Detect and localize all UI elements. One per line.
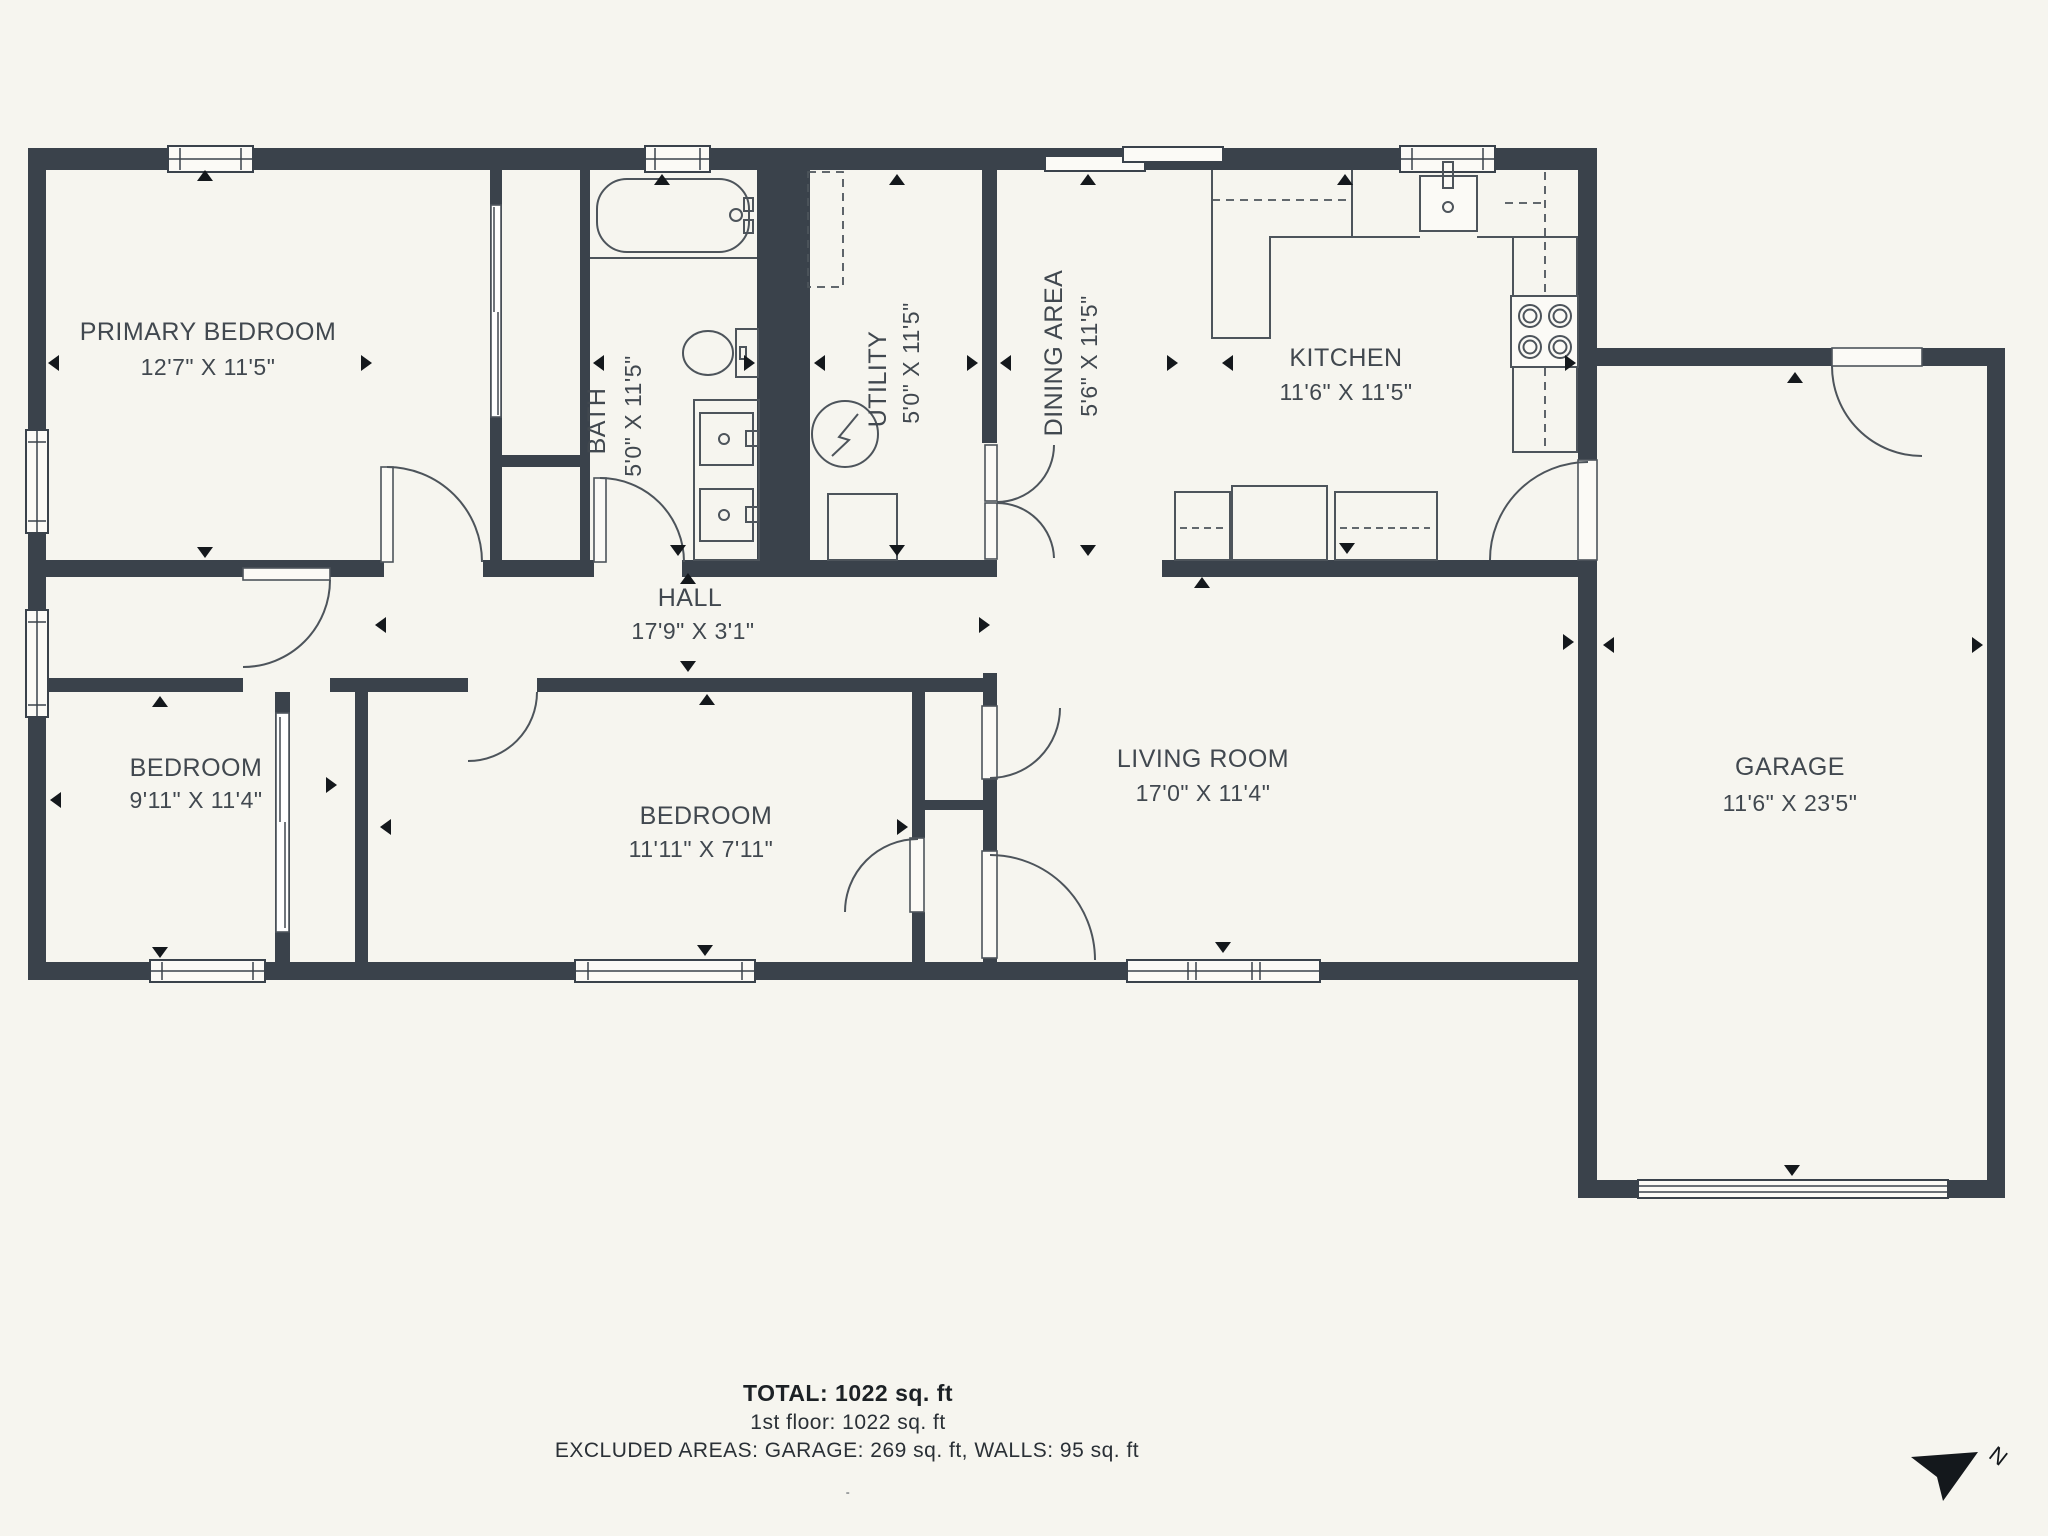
dim-arrow-down <box>1215 942 1231 953</box>
summary: TOTAL: 1022 sq. ft 1st floor: 1022 sq. f… <box>555 1380 1139 1499</box>
dim-arrow-down <box>1339 543 1355 554</box>
dim-arrow-down <box>680 661 696 672</box>
door-kitchen-garage <box>1490 460 1597 560</box>
door-primary-bedroom <box>381 467 482 562</box>
dim-arrow-up <box>152 696 168 707</box>
dim-arrow-up <box>699 694 715 705</box>
summary-total: TOTAL: 1022 sq. ft <box>743 1380 953 1406</box>
dim-arrow-down <box>889 545 905 556</box>
room-dims-garage: 11'6" X 23'5" <box>1723 790 1858 816</box>
window-bedroom1-left <box>26 610 48 717</box>
dim-arrow-up <box>889 174 905 185</box>
dim-arrow-down <box>1784 1165 1800 1176</box>
room-label-kitchen: KITCHEN <box>1289 344 1402 372</box>
room-dims-hall: 17'9" X 3'1" <box>631 618 754 644</box>
dim-arrow-left <box>50 792 61 808</box>
north-label: N <box>1984 1441 2012 1471</box>
room-label-utility: UTILITY <box>864 331 892 428</box>
dim-arrow-left <box>814 355 825 371</box>
room-dims-utility: 5'0" X 11'5" <box>898 302 924 423</box>
dim-arrow-left <box>48 355 59 371</box>
dim-arrow-up <box>1194 577 1210 588</box>
wall-garage-top <box>1597 348 2005 366</box>
window-primary-left <box>26 430 48 533</box>
wall-garage-right <box>1987 348 2005 1198</box>
dim-arrow-up <box>1787 372 1803 383</box>
wall-bedroom2-left <box>355 692 368 962</box>
floorplan-page: PRIMARY BEDROOM 12'7" X 11'5" BATH 5'0" … <box>0 0 2048 1536</box>
room-label-hall: HALL <box>658 584 723 612</box>
walls <box>28 148 2005 1198</box>
dim-arrow-down <box>697 945 713 956</box>
summary-footnote-mark: - <box>846 1485 851 1499</box>
wall-primary-closet-bottom <box>490 455 590 467</box>
sliding-door-primary-closet <box>491 205 501 417</box>
sliding-door-bedroom1-closet <box>276 713 289 932</box>
dim-arrow-right <box>326 777 337 793</box>
wall-closet-divider <box>922 800 993 810</box>
dim-arrow-down <box>197 547 213 558</box>
stove-icon <box>1511 296 1578 367</box>
dim-arrow-up <box>1080 174 1096 185</box>
room-label-bath: BATH <box>583 388 611 455</box>
wall-top <box>28 148 1597 170</box>
dim-arrow-right <box>1972 637 1983 653</box>
window-kitchen-top <box>1400 146 1495 172</box>
wall-bath-utility <box>757 170 810 560</box>
bathroom-vanity-icon <box>694 400 759 560</box>
dim-arrow-right <box>744 355 755 371</box>
dim-arrow-left <box>593 355 604 371</box>
dim-arrow-right <box>361 355 372 371</box>
door-closet-lower <box>982 851 1095 960</box>
room-dims-dining-area: 5'6" X 11'5" <box>1076 295 1102 416</box>
window-bedroom1-bottom <box>150 960 265 982</box>
window-bedroom2-bottom <box>575 960 755 982</box>
room-label-dining-area: DINING AREA <box>1040 270 1068 437</box>
water-heater-dashed-icon <box>808 172 843 287</box>
room-label-living-room: LIVING ROOM <box>1117 745 1289 773</box>
door-dining-double <box>985 445 1054 559</box>
dim-arrow-right <box>1167 355 1178 371</box>
summary-excluded-areas: EXCLUDED AREAS: GARAGE: 269 sq. ft, WALL… <box>555 1439 1139 1462</box>
window-bath-top <box>645 146 710 172</box>
room-label-bedroom2: BEDROOM <box>640 802 773 830</box>
dimension-arrows <box>48 170 1983 1176</box>
summary-first-floor: 1st floor: 1022 sq. ft <box>750 1411 945 1434</box>
room-label-bedroom1: BEDROOM <box>130 754 263 782</box>
room-dims-bedroom1: 9'11" X 11'4" <box>129 787 262 813</box>
dim-arrow-right <box>1563 634 1574 650</box>
compass: N <box>1911 1441 2013 1501</box>
window-primary-top <box>168 146 253 172</box>
dim-arrow-down <box>1080 545 1096 556</box>
wall-closet-bath <box>580 170 590 560</box>
dim-arrow-left <box>1000 355 1011 371</box>
dim-arrow-up <box>1337 174 1353 185</box>
door-bedroom1 <box>243 568 330 667</box>
room-dims-kitchen: 11'6" X 11'5" <box>1279 379 1412 405</box>
toilet-icon <box>683 329 758 377</box>
wall-right-house <box>1578 148 1597 1198</box>
bathtub-icon <box>590 179 757 258</box>
north-arrow-icon <box>1911 1452 1978 1501</box>
wall-bedroom2-right <box>912 692 925 962</box>
door-bedroom2-closet <box>845 838 924 912</box>
dim-arrow-left <box>1222 355 1233 371</box>
door-closet-upper <box>982 706 1060 779</box>
dim-arrow-right <box>897 819 908 835</box>
washer-icon <box>828 494 897 560</box>
window-living-bottom <box>1127 960 1320 982</box>
door-bath <box>594 478 684 562</box>
garage-door <box>1638 1180 1948 1198</box>
wall-left <box>28 148 46 980</box>
room-dims-bedroom2: 11'11" X 7'11" <box>629 836 774 862</box>
dim-arrow-left <box>375 617 386 633</box>
floorplan-drawing: PRIMARY BEDROOM 12'7" X 11'5" BATH 5'0" … <box>0 0 2048 1536</box>
room-dims-bath: 5'0" X 11'5" <box>620 355 646 476</box>
dim-arrow-left <box>1603 637 1614 653</box>
dim-arrow-right <box>967 355 978 371</box>
room-label-garage: GARAGE <box>1735 753 1845 781</box>
room-dims-living-room: 17'0" X 11'4" <box>1136 780 1271 806</box>
door-bedroom2-hall <box>468 692 537 761</box>
dim-arrow-down <box>152 947 168 958</box>
room-label-primary-bedroom: PRIMARY BEDROOM <box>80 318 337 346</box>
dim-arrow-right <box>979 617 990 633</box>
wall-utility-dining <box>982 170 997 443</box>
room-dims-primary-bedroom: 12'7" X 11'5" <box>141 354 276 380</box>
door-garage-entry <box>1832 348 1922 456</box>
dim-arrow-left <box>380 819 391 835</box>
kitchen-appliances-icon <box>1175 486 1437 560</box>
